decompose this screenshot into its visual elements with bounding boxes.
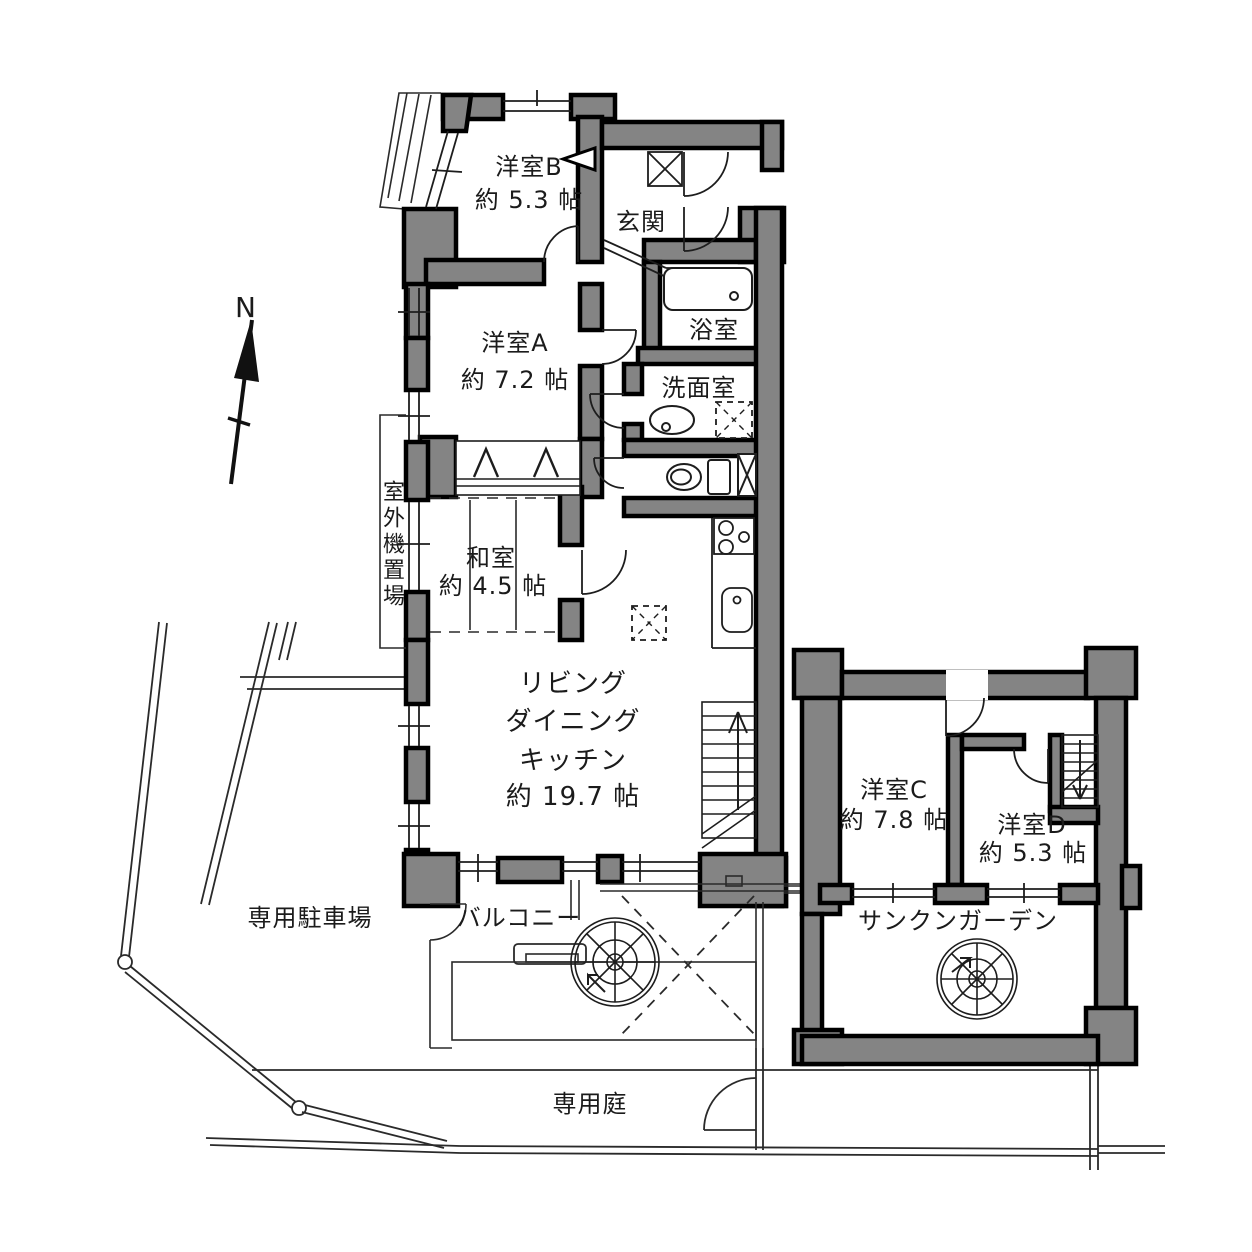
room-size-yoshitsu-c: 約 7.8 帖	[840, 808, 948, 832]
room-label-genkan: 玄関	[616, 210, 666, 234]
room-label-washroom: 洗面室	[662, 376, 737, 400]
room-label-ldk-line3: キッチン	[519, 748, 627, 774]
room-label-yoshitsu-b: 洋室B	[495, 155, 562, 179]
room-size-yoshitsu-d: 約 5.3 帖	[979, 841, 1087, 865]
spiral-staircase-balcony	[571, 918, 659, 1006]
label-private-parking: 専用駐車場	[248, 906, 373, 930]
room-label-bathroom: 浴室	[689, 318, 739, 342]
room-label-washitsu: 和室	[466, 546, 516, 570]
kitchen-sink	[722, 588, 752, 632]
pipe-shaft	[738, 454, 756, 496]
label-balcony: バルコニー	[457, 906, 582, 930]
walls-sunken-building	[794, 648, 1140, 1064]
spiral-staircase-sunken-garden	[937, 939, 1017, 1019]
room-size-washitsu: 約 4.5 帖	[439, 574, 547, 598]
label-private-garden: 専用庭	[553, 1092, 628, 1116]
staircase-ldk	[702, 702, 756, 848]
toilet	[667, 460, 730, 494]
room-size-ldk: 約 19.7 帖	[506, 784, 640, 810]
garden-gate	[704, 1048, 763, 1150]
compass-arrow	[228, 320, 259, 484]
room-label-yoshitsu-a: 洋室A	[481, 331, 548, 355]
kitchen-counter	[712, 518, 756, 648]
compass-north-label: N	[235, 294, 257, 322]
room-a-closet	[456, 441, 580, 495]
room-label-ldk-line2: ダイニング	[505, 709, 640, 735]
room-label-yoshitsu-d: 洋室D	[997, 813, 1066, 837]
staircase-room-d	[1062, 735, 1098, 807]
room-size-yoshitsu-b: 約 5.3 帖	[475, 188, 583, 212]
ldk-hatched-square	[632, 606, 666, 640]
washroom-fixtures	[650, 402, 752, 438]
site-boundary-fences	[118, 622, 1165, 1170]
room-label-yoshitsu-c: 洋室C	[860, 778, 928, 802]
label-outdoor-unit-space: 室外機置場	[380, 480, 402, 610]
room-size-yoshitsu-a: 約 7.2 帖	[461, 368, 569, 392]
slope-hatch-lines	[380, 93, 441, 209]
room-label-ldk-line1: リビング	[519, 671, 627, 697]
floor-plan-drawing	[0, 0, 1252, 1252]
bathtub	[664, 268, 752, 310]
floor-plan: N 洋室B 約 5.3 帖 玄関 洋室A 約 7.2 帖 浴室 洗面室 和室 約…	[0, 0, 1252, 1252]
label-sunken-garden: サンクンガーデン	[858, 909, 1058, 933]
